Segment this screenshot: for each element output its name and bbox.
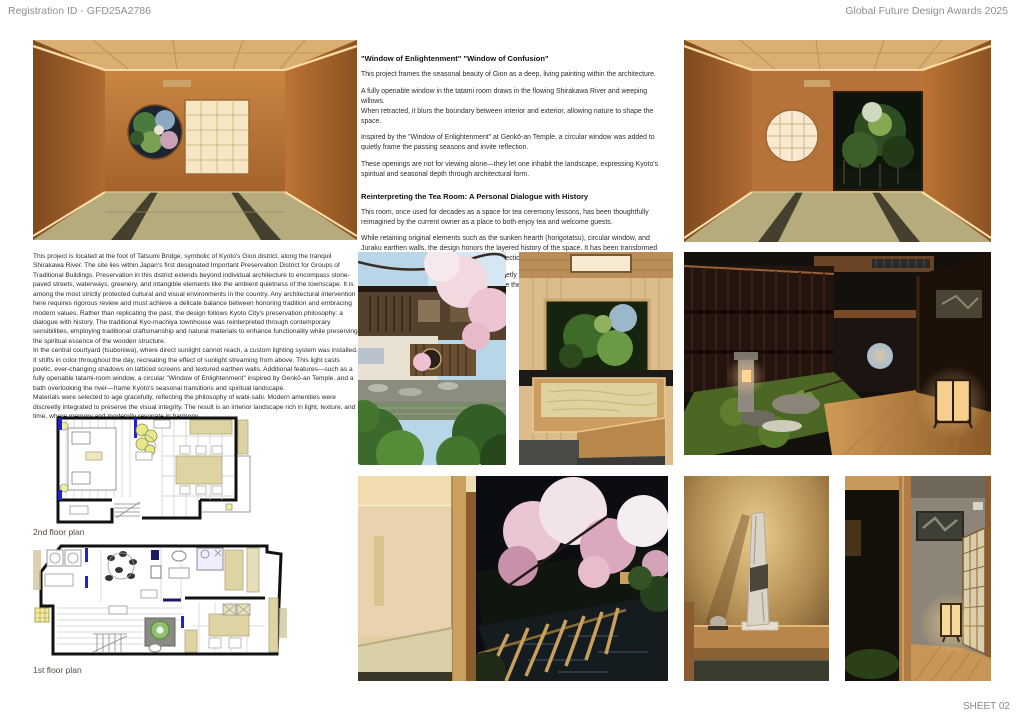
tea-room-paragraph: This room, once used for decades as a sp… [361,208,669,228]
window-paragraph: This project frames the seasonal beauty … [361,70,669,80]
tea-room-section-heading: Reinterpreting the Tea Room: A Personal … [361,192,669,201]
project-paragraph: This project is located at the foot of T… [33,252,360,346]
tatami-room-day-illustration [33,40,357,240]
award-title: Global Future Design Awards 2025 [845,5,1008,17]
presentation-sheet: Registration ID - GFD25A2786 Global Futu… [0,0,1024,723]
tatami-room-night-illustration [684,40,991,242]
first-floor-plan [33,542,287,660]
window-paragraph: Inspired by the "Window of Enlightenment… [361,133,669,153]
first-floor-plan-label: 1st floor plan [33,665,82,675]
window-paragraph: These openings are not for viewing alone… [361,160,669,180]
photo-tatami-room-day [33,40,357,240]
bath-illustration [519,252,673,465]
sheet-number: SHEET 02 [963,701,1010,712]
photo-exterior-cherry-blossom [358,252,506,465]
photo-tatami-room-night [684,40,991,242]
project-paragraph: In the central courtyard (tsuboniwa), wh… [33,346,360,393]
window-paragraph: A fully openable window in the tatami ro… [361,87,669,127]
corridor-illustration [684,252,991,455]
hallway-illustration [845,476,991,681]
photo-hallway-lamp [845,476,991,681]
second-floor-plan [50,412,258,526]
exterior-illustration [358,252,506,465]
window-section-heading: "Window of Enlightenment" "Window of Con… [361,54,669,63]
project-description: This project is located at the foot of T… [33,252,360,422]
photo-tokonoma-sculpture [684,476,829,681]
photo-night-river-cherry [358,476,668,681]
second-floor-plan-drawing [50,412,258,526]
photo-corridor-moss-garden [684,252,991,455]
sculpture-illustration [684,476,829,681]
second-floor-plan-label: 2nd floor plan [33,527,85,537]
photo-wooden-bath [519,252,673,465]
night-river-illustration [358,476,668,681]
first-floor-plan-drawing [33,542,287,660]
registration-id: Registration ID - GFD25A2786 [8,5,151,17]
